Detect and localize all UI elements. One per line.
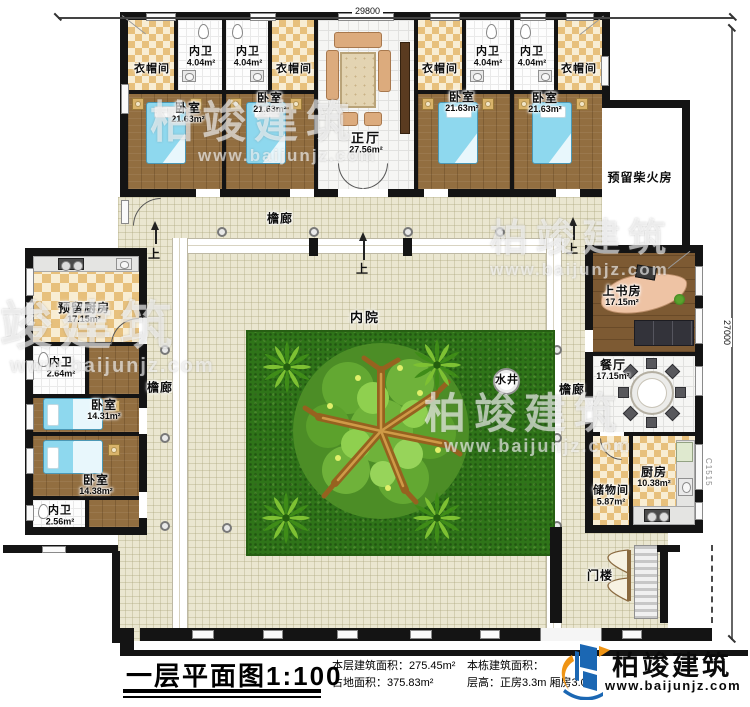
stats-left: 本层建筑面积：275.45m² 占地面积：375.83m² [332, 658, 455, 692]
wall-stub [657, 545, 680, 552]
window [695, 366, 703, 396]
label-bath-w2: 内卫2.56m² [46, 506, 75, 527]
sink [470, 70, 484, 82]
label-well: 水井 [495, 375, 519, 387]
up-label: 上 [566, 240, 578, 257]
room-bed-w2-floor [89, 500, 139, 527]
door-opening [290, 189, 314, 197]
column-stub [309, 238, 318, 256]
dimension-right-value: 27000 [722, 318, 732, 347]
door-opening [600, 432, 624, 436]
up-label: 上 [356, 260, 368, 277]
study-sofa [634, 320, 694, 346]
gate-wall [550, 527, 562, 623]
window [695, 502, 703, 520]
dining-chair [618, 387, 629, 398]
title-underline [123, 689, 321, 693]
room-cloak-b-floor [272, 20, 314, 90]
nightstand [132, 98, 144, 110]
palm-tree [409, 337, 465, 393]
door-opening [139, 408, 147, 434]
stat-footprint-area: 占地面积：375.83m² [332, 675, 455, 692]
label-bath-a: 内卫4.04m² [187, 47, 216, 68]
dining-chair [646, 358, 657, 369]
column [309, 227, 319, 237]
door-opening [139, 492, 147, 518]
up-arrow [573, 224, 575, 240]
room-cloak-d-floor [558, 20, 602, 90]
door-opening [424, 189, 448, 197]
gate-steps [634, 545, 658, 619]
label-bath-b: 内卫4.04m² [234, 47, 263, 68]
window-c1515 [695, 444, 703, 490]
toilet [198, 24, 209, 39]
sink [678, 478, 693, 496]
label-kitchen: 厨房10.38m² [637, 466, 671, 488]
tv-cabinet [400, 42, 410, 134]
title-underline-2 [123, 696, 321, 698]
label-courtyard: 内院 [350, 311, 380, 325]
up-arrow [363, 240, 365, 260]
nightstand [230, 98, 242, 110]
label-hall: 正厅27.56m² [349, 131, 383, 154]
dining-chair [675, 387, 686, 398]
label-corridor-top: 檐廊 [267, 213, 293, 226]
up-arrow [155, 228, 157, 244]
stove [58, 258, 84, 270]
nightstand [576, 98, 588, 110]
column [403, 227, 413, 237]
dining-table [630, 371, 674, 415]
palm-tree [259, 339, 315, 395]
sink [538, 70, 552, 82]
label-bath-d: 内卫4.04m² [518, 47, 547, 68]
sink [250, 70, 264, 82]
up-arrow-head [359, 232, 367, 241]
sink [116, 258, 132, 270]
window-code-label: C1515 [704, 458, 713, 487]
label-cloak-d: 衣帽间 [561, 64, 597, 76]
window [26, 268, 34, 296]
label-cloak-a: 衣帽间 [134, 64, 170, 76]
label-bed-d: 卧室21.63m² [528, 92, 562, 114]
label-corridor-left: 檐廊 [147, 382, 173, 395]
nightstand [482, 98, 494, 110]
desk-plant [674, 294, 685, 305]
dining-chair [646, 417, 657, 428]
column [160, 345, 170, 355]
firewood-wall [682, 100, 690, 250]
window [26, 448, 34, 474]
door-opening [196, 189, 220, 197]
window [26, 404, 34, 430]
boundary-wall [112, 551, 120, 643]
stove [644, 509, 670, 522]
label-cloak-b: 衣帽间 [276, 64, 312, 76]
nightstand [108, 444, 120, 456]
window [480, 630, 500, 639]
palm-tree [409, 490, 465, 546]
company-logo-url: www.baijunjz.com [605, 678, 741, 693]
window [410, 630, 432, 639]
window [26, 360, 34, 380]
window [26, 302, 34, 326]
room-cloak-c-floor [418, 20, 462, 90]
boundary-dashed-line [711, 545, 713, 623]
label-bed-a: 卧室21.63m² [171, 102, 205, 124]
label-firewood: 预留柴火房 [607, 172, 672, 185]
company-logo-icon [552, 638, 612, 700]
label-corridor-right: 檐廊 [559, 384, 585, 397]
hall-armchair [340, 112, 358, 126]
hall-sofa [326, 50, 339, 100]
window [263, 630, 283, 639]
sink [182, 70, 196, 82]
column [160, 521, 170, 531]
window [192, 630, 214, 639]
door-opening [556, 189, 580, 197]
label-bed-b: 卧室21.63m² [253, 92, 287, 114]
window [121, 200, 129, 224]
up-arrow-head [151, 221, 159, 230]
floor-plan-canvas: 上 上 上 衣帽间 内卫4.04m² 卧室21.63m² 内卫4.04m² 衣帽… [0, 0, 750, 707]
firewood-wall [602, 100, 690, 108]
hall-rug [340, 52, 376, 108]
label-bath-c: 内卫4.04m² [474, 47, 503, 68]
window [601, 56, 609, 86]
window [42, 546, 66, 553]
window [337, 630, 358, 639]
door-opening [139, 318, 147, 344]
bed [43, 440, 103, 474]
toilet [232, 24, 243, 39]
room-cloak-a-floor [128, 20, 174, 90]
label-storage: 储物间5.87m² [593, 486, 629, 507]
label-bed-w2: 卧室14.38m² [79, 474, 113, 496]
gate-wall [660, 545, 668, 623]
dimension-line-top [58, 17, 734, 19]
label-bath-w1: 内卫2.64m² [47, 358, 76, 379]
up-label: 上 [148, 245, 160, 262]
label-cloak-c: 衣帽间 [422, 64, 458, 76]
window [622, 630, 642, 639]
hall-armchair [378, 50, 391, 92]
stat-floor-area: 本层建筑面积：275.45m² [332, 658, 455, 675]
label-dining: 餐厅17.15m² [596, 359, 630, 381]
window [695, 308, 703, 344]
label-study: 上书房17.15m² [602, 285, 641, 307]
palm-tree [258, 490, 314, 546]
label-bed-w1: 卧室14.31m² [87, 399, 121, 421]
nightstand [290, 98, 302, 110]
up-arrow-head [569, 217, 577, 226]
column [495, 227, 505, 237]
window [121, 84, 129, 114]
hall-door-opening [338, 189, 388, 197]
plan-title: 一层平面图1:100 [126, 656, 343, 693]
column [217, 227, 227, 237]
column-stub [403, 238, 412, 256]
colonnade-band-top [172, 238, 564, 254]
hall-armchair [364, 112, 382, 126]
window [695, 266, 703, 296]
column [160, 433, 170, 443]
toilet [520, 24, 531, 39]
window [26, 505, 34, 521]
nightstand [422, 98, 434, 110]
door-opening [585, 330, 593, 352]
label-bed-c: 卧室21.63m² [445, 91, 479, 113]
label-gatehouse: 门楼 [587, 570, 613, 583]
label-kitchen-reserved: 预留厨房17.15m² [58, 302, 110, 324]
hall-sofa [334, 32, 382, 48]
column [222, 523, 232, 533]
door-opening [585, 398, 593, 422]
dimension-top-value: 29800 [352, 6, 383, 16]
room-bed-w1-floor [89, 346, 139, 394]
colonnade-band-left [172, 238, 188, 641]
toilet [486, 24, 497, 39]
fridge [676, 442, 693, 462]
